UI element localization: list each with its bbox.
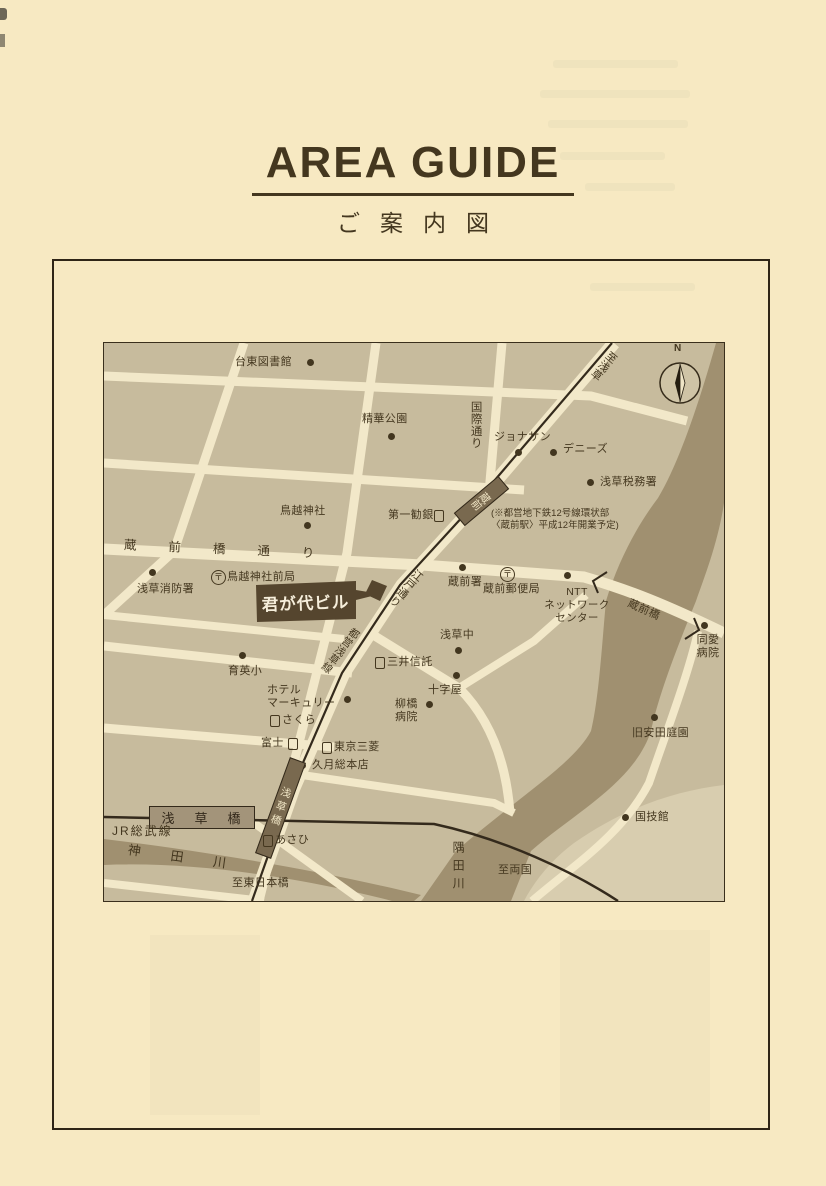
doai-line2: 病院 xyxy=(688,647,725,660)
page-subtitle: ご案内図 xyxy=(0,204,826,238)
to-higashi-nihonbashi-label: 至東日本橋 xyxy=(232,877,289,890)
kokusai-dori-label: 国際通り xyxy=(468,401,482,467)
bank-symbol-icon xyxy=(263,835,273,847)
hotel-line1: ホテル xyxy=(267,684,335,697)
compass-icon xyxy=(660,363,700,403)
torigoe-post-office-label: 鳥越神社前局 xyxy=(227,571,295,584)
location-dot xyxy=(564,572,571,579)
asakusabashi-jr-label: 浅草橋 xyxy=(161,808,260,827)
fuji-bank-label: 富士 xyxy=(261,737,284,750)
ntt-network-center-label: NTT ネットワーク センター xyxy=(532,586,622,625)
jr-sobu-line-label: JR総武線 xyxy=(112,824,173,838)
location-dot xyxy=(304,522,311,529)
kokugikan-label: 国技館 xyxy=(635,811,669,824)
scan-artifact xyxy=(0,8,7,20)
sumida-river-label: 隅田川 xyxy=(451,841,465,902)
bank-symbol-icon xyxy=(375,657,385,669)
taito-library-label: 台東図書館 xyxy=(235,356,292,369)
ntt-line1: NTT xyxy=(532,586,622,599)
page-title: AREA GUIDE xyxy=(252,138,575,196)
subway-note-line1: (※都営地下鉄12号線環状部 xyxy=(491,508,619,520)
location-dot xyxy=(550,449,557,456)
torigoe-shrine-label: 鳥越神社 xyxy=(280,505,326,518)
location-dot xyxy=(239,652,246,659)
tokyo-mitsubishi-label: 東京三菱 xyxy=(334,741,380,754)
scan-artifact xyxy=(0,34,5,47)
kimigayo-building xyxy=(365,580,387,601)
asahi-bank-label: あさひ xyxy=(275,834,309,847)
post-office-icon: 〒 xyxy=(211,570,226,585)
location-dot xyxy=(455,647,462,654)
bank-symbol-icon xyxy=(434,510,444,522)
asakusa-tax-office-label: 浅草税務署 xyxy=(600,476,657,489)
location-dot xyxy=(453,672,460,679)
subway-note: (※都営地下鉄12号線環状部 〈蔵前駅〉平成12年開業予定) xyxy=(491,508,619,531)
location-dot xyxy=(344,696,351,703)
yanagibashi-line2: 病院 xyxy=(395,711,418,724)
ikuei-elementary-label: 育英小 xyxy=(228,665,262,678)
subway-note-line2: 〈蔵前駅〉平成12年開業予定) xyxy=(491,520,619,532)
doai-line1: 同愛 xyxy=(688,634,725,647)
location-dot xyxy=(651,714,658,721)
compass-n-label: N xyxy=(674,343,682,355)
ntt-line3: センター xyxy=(532,612,622,625)
location-dot xyxy=(459,564,466,571)
bank-symbol-icon xyxy=(322,742,332,754)
header: AREA GUIDE ご案内図 xyxy=(0,138,826,238)
mitsui-trust-label: 三井信託 xyxy=(387,656,433,669)
kugetsu-label: 久月総本店 xyxy=(312,759,369,772)
ntt-line2: ネットワーク xyxy=(532,599,622,612)
location-dot xyxy=(587,479,594,486)
jujiya-label: 十字屋 xyxy=(428,684,462,697)
hotel-mercury-label: ホテル マーキュリー xyxy=(267,684,335,710)
to-ryogoku-label: 至両国 xyxy=(498,864,532,877)
scanned-page: AREA GUIDE ご案内図 xyxy=(0,0,826,1186)
asakusa-fire-station-label: 浅草消防署 xyxy=(137,583,194,596)
location-dot xyxy=(307,359,314,366)
jonathan-label: ジョナサン xyxy=(494,431,551,444)
location-dot xyxy=(622,814,629,821)
yanagibashi-line1: 柳橋 xyxy=(395,698,418,711)
yasuda-garden-label: 旧安田庭園 xyxy=(632,727,689,740)
sakura-bank-label: さくら xyxy=(282,714,316,727)
seika-park-label: 精華公園 xyxy=(362,413,408,426)
bank-symbol-icon xyxy=(288,738,298,750)
doai-hospital-label: 同愛 病院 xyxy=(688,634,725,660)
daiichi-kangyo-label: 第一勧銀 xyxy=(388,509,434,522)
location-dot xyxy=(426,701,433,708)
hotel-line2: マーキュリー xyxy=(267,697,335,710)
bank-symbol-icon xyxy=(270,715,280,727)
location-dot xyxy=(701,622,708,629)
yanagibashi-hospital-label: 柳橋 病院 xyxy=(395,698,418,724)
asakusa-jhs-label: 浅草中 xyxy=(440,629,474,642)
location-dot xyxy=(149,569,156,576)
kimigayo-building-label: 君が代ビル xyxy=(257,588,355,615)
kuramae-police-label: 蔵前署 xyxy=(448,576,482,589)
location-dot xyxy=(515,449,522,456)
location-dot xyxy=(388,433,395,440)
dennys-label: デニーズ xyxy=(563,443,608,456)
area-map: N 至浅草 台東図書館 精華公園 国際通り ジョナサン デニーズ 浅草税務署 第… xyxy=(103,342,725,902)
post-office-icon: 〒 xyxy=(500,567,515,582)
